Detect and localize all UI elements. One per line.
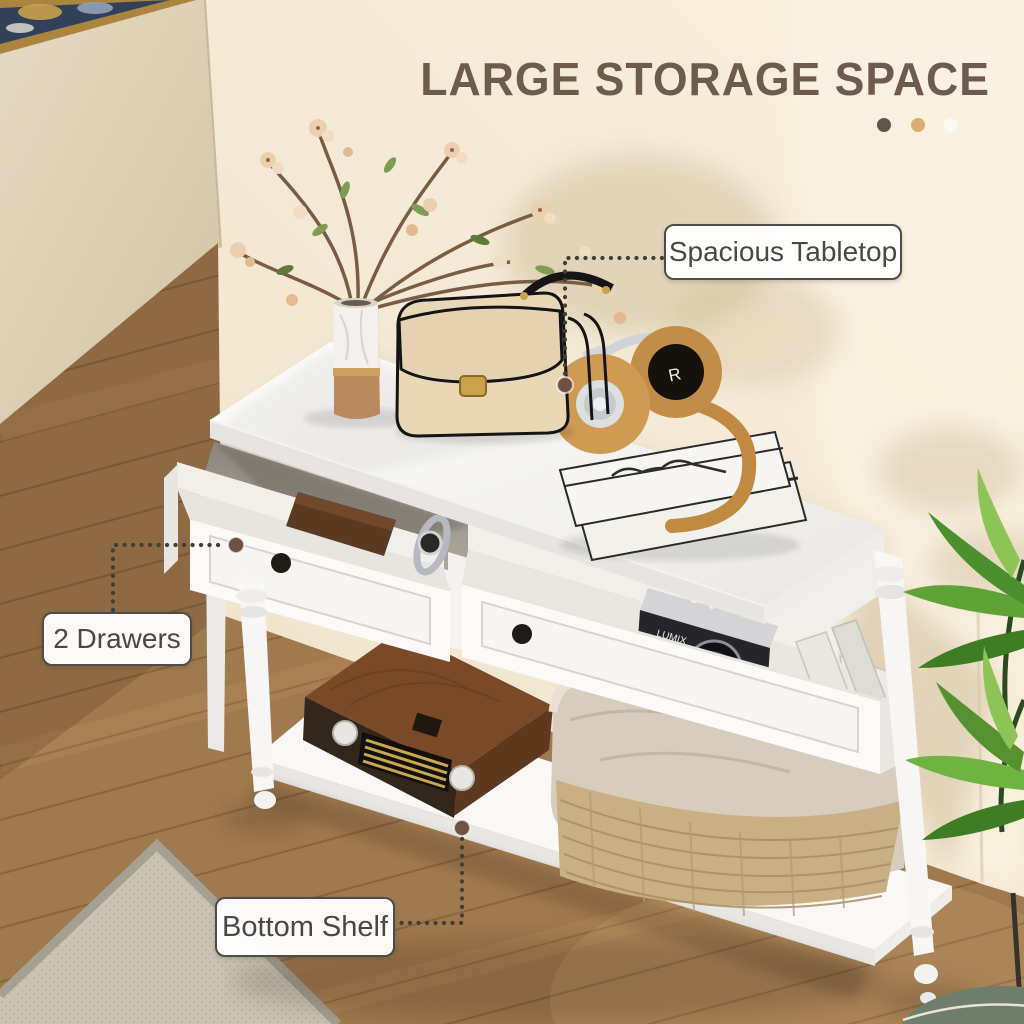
drawer-knob-right (512, 624, 532, 644)
callout-bottom-shelf: Bottom Shelf (215, 897, 395, 957)
callout-spacious-tabletop: Spacious Tabletop (664, 224, 902, 280)
callout-2-drawers-label: 2 Drawers (53, 623, 181, 655)
callout-2-drawers: 2 Drawers (42, 612, 192, 666)
callout-spacious-tabletop-label: Spacious Tabletop (669, 236, 897, 268)
room-photo: LUMIX (0, 0, 1024, 1024)
drawer-knob-left (271, 553, 291, 573)
callout-bottom-shelf-label: Bottom Shelf (222, 911, 388, 944)
product-feature-image: LUMIX (0, 0, 1024, 1024)
page-title: LARGE STORAGE SPACE (420, 52, 955, 106)
